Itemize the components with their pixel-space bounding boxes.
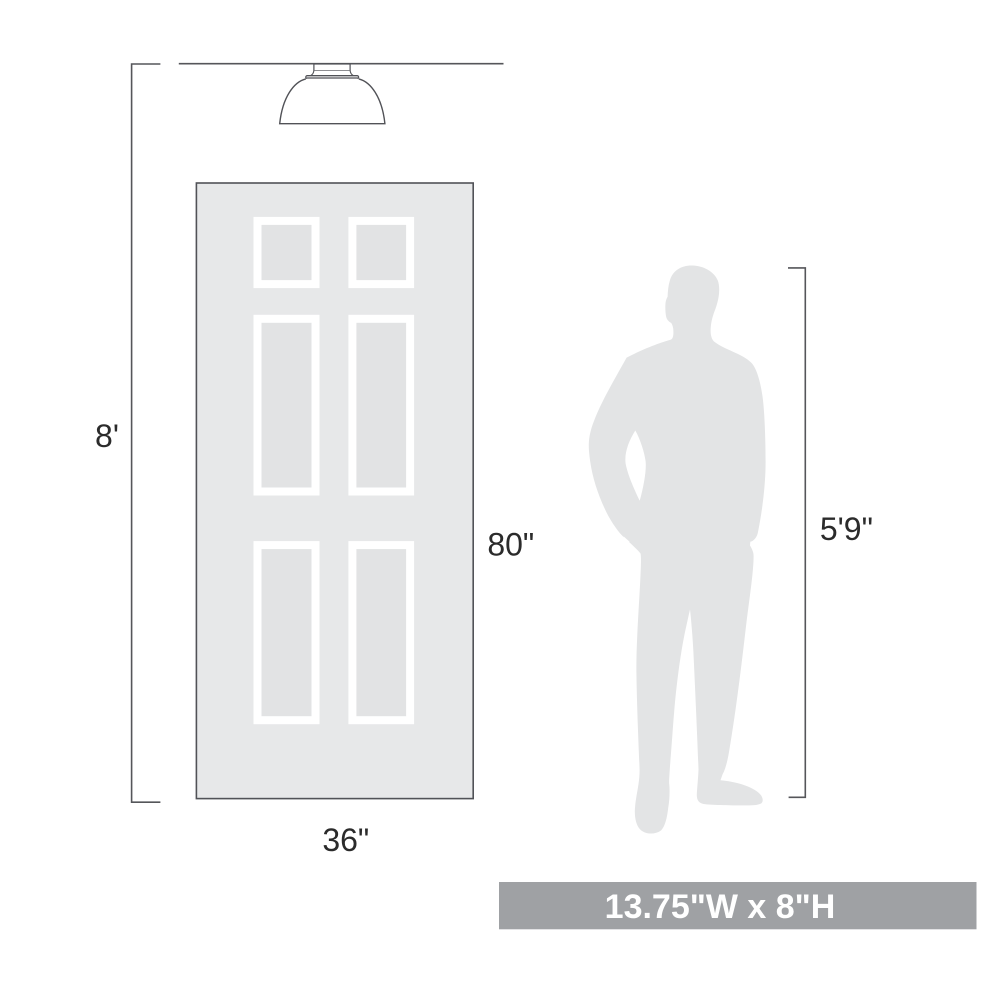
svg-text:13.75"W x 8"H: 13.75"W x 8"H (605, 888, 836, 926)
svg-text:36": 36" (322, 822, 369, 858)
svg-text:80": 80" (487, 527, 534, 563)
svg-text:5'9": 5'9" (820, 511, 873, 547)
svg-text:8': 8' (95, 418, 119, 454)
